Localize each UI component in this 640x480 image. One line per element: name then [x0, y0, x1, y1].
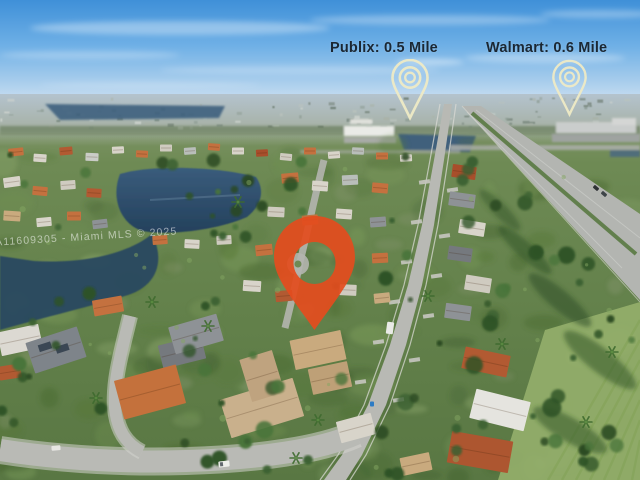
aerial-listing-photo: Publix: 0.5 Mile Walmart: 0.6 Mile A1160… [0, 0, 640, 480]
publix-distance-label: Publix: 0.5 Mile [330, 40, 438, 57]
publix-pin-icon [388, 57, 432, 122]
walmart-pin-icon [549, 58, 590, 118]
property-location-pin-icon [271, 214, 358, 333]
walmart-distance-label: Walmart: 0.6 Mile [486, 40, 607, 57]
